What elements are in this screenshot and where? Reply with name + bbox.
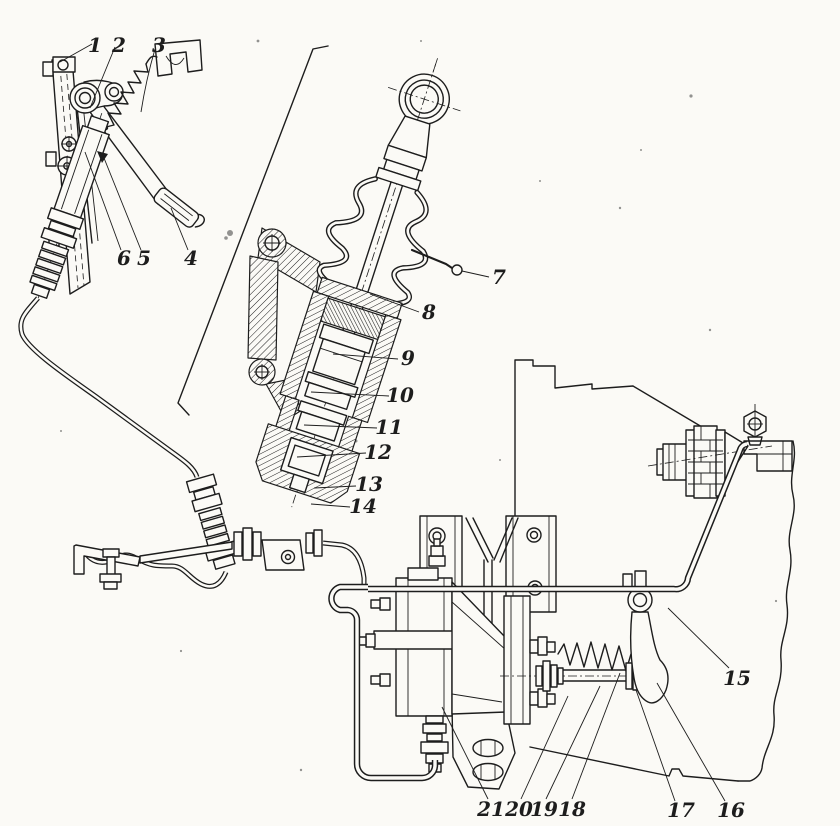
mount-bar xyxy=(374,631,454,649)
callout-6: 6 xyxy=(117,246,131,270)
callout-7: 7 xyxy=(492,265,506,289)
pipe-clamp xyxy=(623,571,646,587)
callout-9: 9 xyxy=(401,346,415,370)
clutch-hydraulic-drive-diagram: 1 2 3 4 5 6 7 8 9 10 11 12 13 14 15 16 1… xyxy=(0,0,840,826)
front-flange xyxy=(504,596,530,724)
body-top-boss xyxy=(408,568,438,580)
callout-4: 4 xyxy=(184,246,198,270)
callout-14: 14 xyxy=(349,494,377,518)
callout-17: 17 xyxy=(667,798,695,822)
callout-11: 11 xyxy=(375,415,403,439)
callout-20: 20 xyxy=(504,797,533,821)
callout-1: 1 xyxy=(88,33,102,57)
callout-18: 18 xyxy=(558,797,586,821)
callout-3: 3 xyxy=(152,33,166,57)
callout-15: 15 xyxy=(723,666,751,690)
technical-drawing-sheet: 1 2 3 4 5 6 7 8 9 10 11 12 13 14 15 16 1… xyxy=(0,0,840,826)
callout-12: 12 xyxy=(364,440,392,464)
bracket-tab-middle xyxy=(46,152,56,166)
lower-bracket-bolt-upper xyxy=(473,740,503,757)
bracket-strap xyxy=(248,256,278,360)
callout-2: 2 xyxy=(111,33,126,57)
callout-8: 8 xyxy=(421,300,436,324)
callout-19: 19 xyxy=(530,797,558,821)
bracket-top-bolt xyxy=(58,60,68,70)
callout-16: 16 xyxy=(717,798,745,822)
callout-5: 5 xyxy=(137,246,151,270)
callout-21: 21 xyxy=(476,797,505,821)
callout-10: 10 xyxy=(386,383,414,407)
bracket-tab-top xyxy=(43,62,53,76)
callout-13: 13 xyxy=(355,472,383,496)
